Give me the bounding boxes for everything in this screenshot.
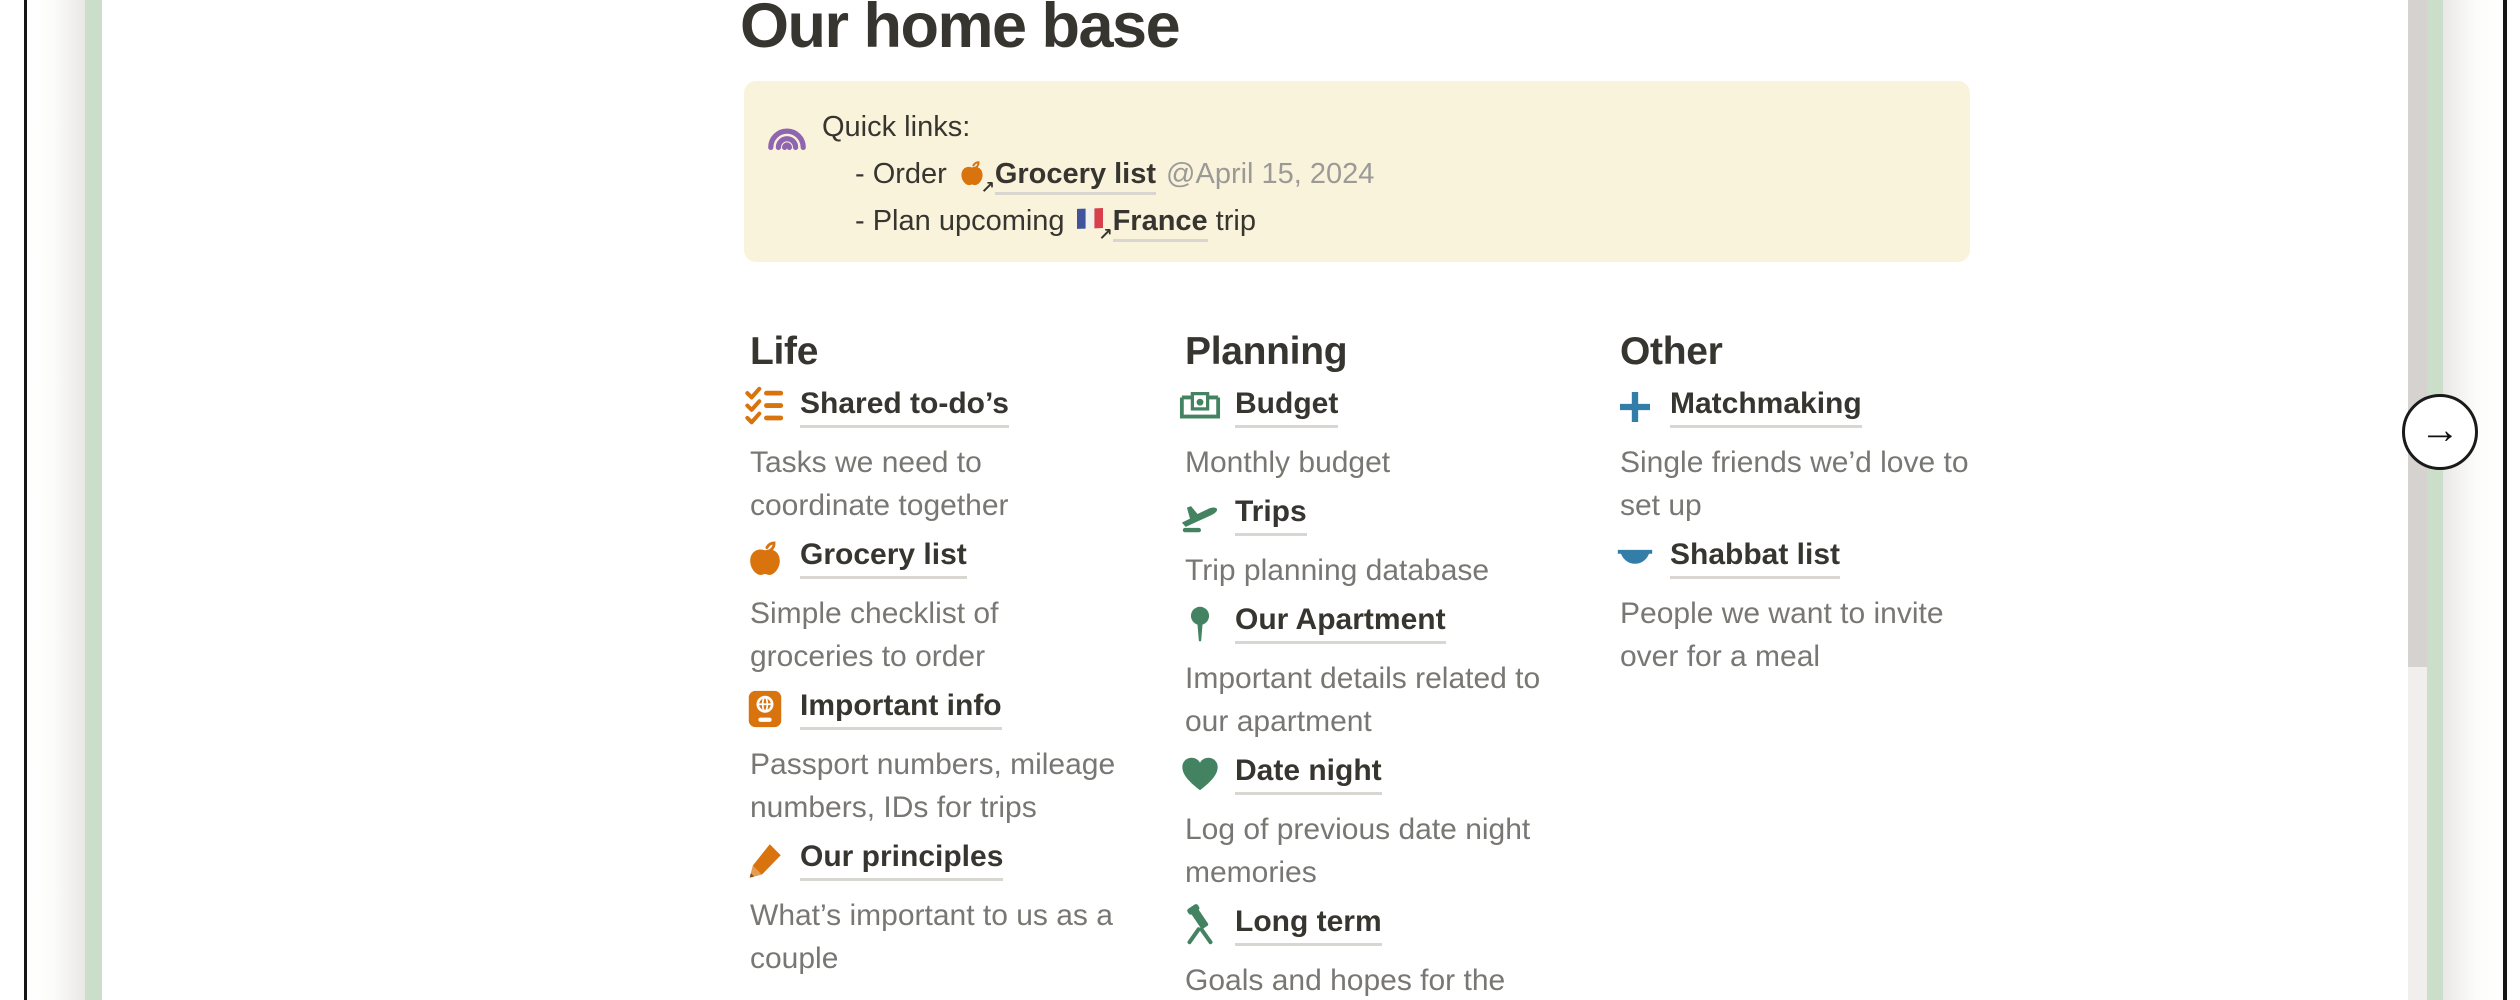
page-link-description: Simple checklist ofgroceries to order [750, 592, 1150, 678]
callout-item-suffix: trip [1216, 205, 1256, 237]
page-link-description: Important details related toour apartmen… [1185, 657, 1585, 743]
france-flag-icon: ↗ [1075, 205, 1105, 235]
page-title: Our home base [740, 0, 1179, 62]
page-link-shared-todos[interactable]: Shared to-do’s [750, 384, 1150, 430]
bowl-icon [1612, 535, 1658, 581]
column-planning: Planning Budget Monthly budget [1185, 330, 1585, 1000]
page-link-description: Trip planning database [1185, 549, 1585, 592]
card-edge-right [2427, 0, 2443, 1000]
callout-item-prefix: - Order [855, 158, 947, 190]
page-link-label[interactable]: Our principles [800, 840, 1003, 881]
card-shadow-left [27, 0, 85, 1000]
external-link-arrow-icon: ↗ [981, 179, 995, 196]
callout-quick-link-row: - Order↗Grocery list@April 15, 2024 [822, 151, 1374, 198]
template-preview-carousel: Our home base Quick links: - Order↗Groce… [0, 0, 2520, 1000]
page-link-description: Tasks we need tocoordinate together [750, 441, 1150, 527]
page-link-description: Single friends we’d love toset up [1620, 441, 2020, 527]
page-link-description: Log of previous date nightmemories [1185, 808, 1585, 894]
page-link-our-apartment[interactable]: Our Apartment [1185, 600, 1585, 646]
date-mention[interactable]: @April 15, 2024 [1166, 158, 1374, 190]
page-link-long-term[interactable]: Long term [1185, 902, 1585, 948]
apple-icon [742, 535, 788, 581]
heart-icon [1177, 751, 1223, 797]
page-link-matchmaking[interactable]: Matchmaking [1620, 384, 2020, 430]
page-link-description: What’s important to us as acouple [750, 894, 1150, 980]
telescope-icon [1177, 902, 1223, 948]
airplane-icon [1177, 492, 1223, 538]
page-link-label[interactable]: Trips [1235, 495, 1307, 536]
callout-body: Quick links: - Order↗Grocery list@April … [822, 104, 1374, 245]
page-link-label[interactable]: Shabbat list [1670, 538, 1840, 579]
card-edge-left [85, 0, 102, 1000]
link-columns: Life Shared to-do’s Tasks we need tocoor… [750, 330, 2055, 1000]
map-pin-icon [1177, 600, 1223, 646]
column-heading: Other [1620, 330, 2020, 374]
page-link-important-info[interactable]: Important info [750, 686, 1150, 732]
page-link-label[interactable]: Shared to-do’s [800, 387, 1009, 428]
column-heading: Life [750, 330, 1150, 374]
page-link-description: Passport numbers, mileagenumbers, IDs fo… [750, 743, 1150, 829]
apple-icon: ↗ [957, 158, 987, 188]
external-link-arrow-icon: ↗ [1098, 226, 1112, 243]
page-link-grocery-list[interactable]: Grocery list [750, 535, 1150, 581]
page-link-shabbat-list[interactable]: Shabbat list [1620, 535, 2020, 581]
rainbow-icon [766, 116, 808, 157]
page-link-label[interactable]: Long term [1235, 905, 1382, 946]
pencil-icon [742, 837, 788, 883]
card-shadow-right [2443, 0, 2503, 1000]
checklist-icon [742, 384, 788, 430]
right-arrow-icon: → [2420, 410, 2460, 450]
callout-item-prefix: - Plan upcoming [855, 205, 1065, 237]
page-link-label[interactable]: Important info [800, 689, 1002, 730]
page-link-date-night[interactable]: Date night [1185, 751, 1585, 797]
passport-icon [742, 686, 788, 732]
column-heading: Planning [1185, 330, 1585, 374]
page-link-budget[interactable]: Budget [1185, 384, 1585, 430]
france-trip-mention-link[interactable]: France [1113, 205, 1208, 242]
page-link-description: People we want to inviteover for a meal [1620, 592, 2020, 678]
page-link-description: Goals and hopes for the [1185, 959, 1585, 1000]
notion-page-preview: Our home base Quick links: - Order↗Groce… [102, 0, 2408, 1000]
page-link-label[interactable]: Grocery list [800, 538, 967, 579]
column-life: Life Shared to-do’s Tasks we need tocoor… [750, 330, 1150, 1000]
grocery-list-mention-link[interactable]: Grocery list [995, 158, 1156, 195]
scrollbar-thumb[interactable] [2408, 0, 2427, 667]
carousel-next-button[interactable]: → [2402, 394, 2478, 470]
plus-icon [1612, 384, 1658, 430]
callout-quick-link-row: - Plan upcoming↗Francetrip [822, 198, 1374, 245]
page-link-label[interactable]: Budget [1235, 387, 1338, 428]
page-link-description: Monthly budget [1185, 441, 1585, 484]
page-link-label[interactable]: Matchmaking [1670, 387, 1862, 428]
scrollbar-track[interactable] [2408, 667, 2427, 1000]
page-link-label[interactable]: Date night [1235, 754, 1382, 795]
page-link-our-principles[interactable]: Our principles [750, 837, 1150, 883]
quick-links-callout: Quick links: - Order↗Grocery list@April … [744, 81, 1970, 262]
page-link-label[interactable]: Our Apartment [1235, 603, 1446, 644]
column-other: Other Matchmaking Single friends we’d lo… [1620, 330, 2020, 1000]
banknote-icon [1177, 384, 1223, 430]
carousel-border-right [2503, 0, 2507, 1000]
page-link-trips[interactable]: Trips [1185, 492, 1585, 538]
callout-title: Quick links: [822, 104, 1374, 151]
